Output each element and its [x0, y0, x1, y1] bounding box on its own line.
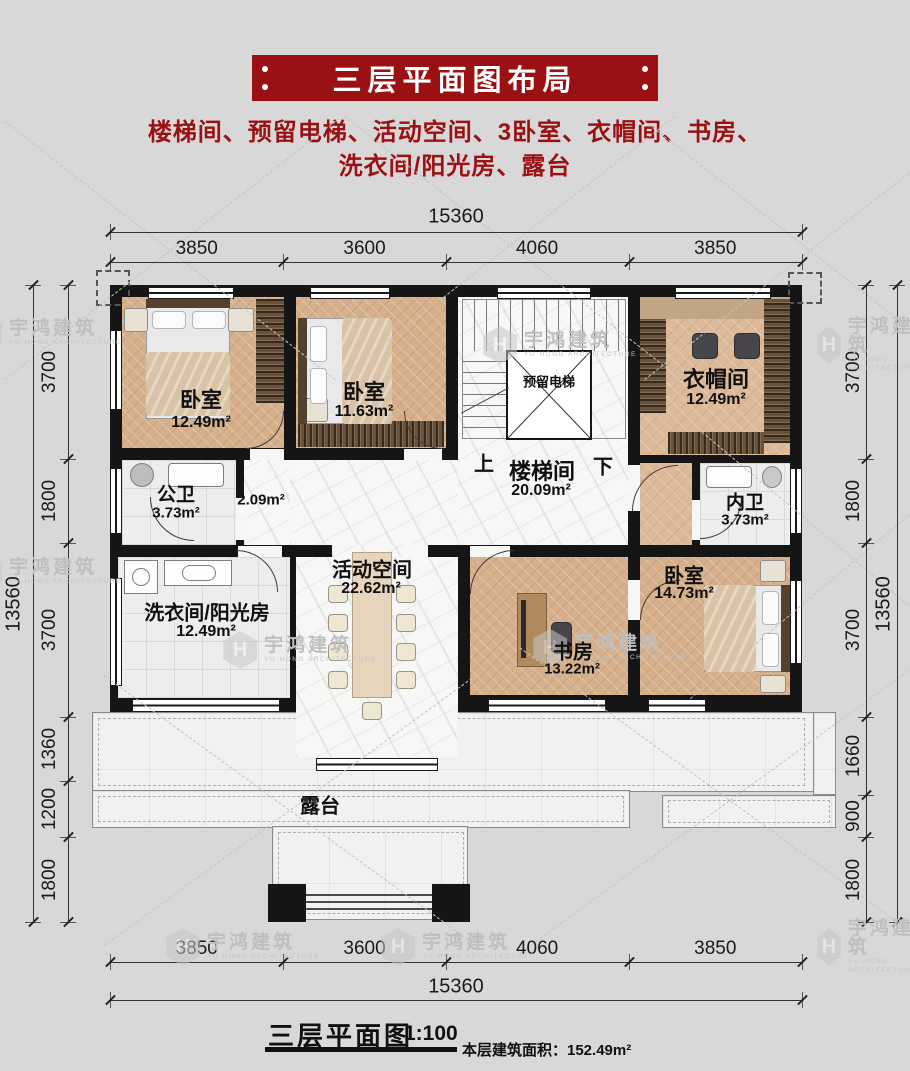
label-activity-area: 22.62m²: [341, 580, 401, 598]
chair: [328, 671, 348, 689]
window: [675, 287, 771, 299]
door-opening: [404, 449, 442, 460]
dimension-mark: [897, 285, 898, 922]
room-midhall: [290, 460, 458, 545]
label-stair-up: 上: [474, 448, 494, 477]
footer-area: 本层建筑面积：152.49m²: [462, 1039, 631, 1060]
washing-machine-door: [132, 568, 150, 586]
terrace-parapet: [813, 712, 836, 795]
dimension-label: 1660: [843, 735, 865, 777]
label-bedroom3-area: 14.73m²: [654, 585, 714, 603]
elevator-cross-icon: [508, 352, 590, 438]
dimension-mark: [110, 232, 802, 233]
dimension-label: 4060: [516, 938, 558, 960]
dimension-label: 3700: [843, 351, 865, 393]
dimension-label: 3600: [343, 938, 385, 960]
dimension-mark: [110, 962, 802, 963]
window: [310, 287, 390, 299]
window: [497, 287, 591, 299]
nightstand: [760, 675, 786, 693]
terrace-pillar: [268, 884, 306, 922]
label-stairwell-area: 20.09m²: [511, 482, 571, 500]
label-bedroom1: 卧室: [180, 384, 222, 414]
dimension-label: 900: [843, 800, 865, 832]
label-laundry: 洗衣间/阳光房: [144, 597, 270, 626]
bed-headboard: [146, 299, 230, 308]
dimension-label: 3850: [176, 938, 218, 960]
dimension-mark: [110, 1000, 802, 1001]
floor-plan-page: { "header": { "title": "三层平面图布局", "subti…: [0, 0, 910, 1071]
toilet: [762, 466, 782, 488]
dimension-label: 1800: [843, 480, 865, 522]
chair: [396, 614, 416, 632]
chair: [362, 702, 382, 720]
dimension-label: 3700: [39, 609, 61, 651]
window: [110, 468, 122, 534]
dimension-label: 15360: [428, 206, 484, 229]
bed-headboard: [781, 585, 790, 672]
label-study-area: 13.22m²: [544, 661, 600, 678]
nightstand: [228, 308, 254, 332]
dimension-label: 3700: [39, 351, 61, 393]
dimension-mark: [110, 262, 802, 263]
label-laundry-area: 12.49m²: [176, 623, 236, 641]
nightstand: [124, 308, 148, 332]
chair: [328, 614, 348, 632]
label-hallway-area: 2.09m²: [237, 492, 285, 509]
dimension-mark: [68, 285, 69, 922]
label-ensuite-area: 3.73m²: [721, 512, 769, 529]
window: [316, 758, 438, 771]
label-bedroom2: 卧室: [343, 376, 385, 406]
dimension-label: 1800: [39, 480, 61, 522]
window: [110, 578, 122, 686]
dimension-label: 1360: [39, 728, 61, 770]
label-bedroom1-area: 12.49m²: [171, 414, 231, 432]
pillow: [310, 368, 327, 404]
pillow: [762, 633, 779, 667]
dimension-label: 1800: [39, 859, 61, 901]
floor-drain: [130, 463, 154, 487]
pillow: [152, 311, 186, 329]
door-opening: [628, 580, 640, 620]
door-opening: [692, 500, 700, 540]
terrace-parapet-line: [668, 800, 830, 823]
elevator-shaft: [506, 350, 592, 440]
window: [132, 699, 280, 712]
cloakroom-wardrobe-bottom: [668, 432, 764, 454]
door-opening: [250, 449, 284, 460]
chair: [328, 643, 348, 661]
terrace-pillar: [432, 884, 470, 922]
roof-corner-mark: [788, 272, 822, 304]
chair: [734, 333, 760, 359]
window: [488, 699, 606, 712]
dimension-label: 3850: [694, 238, 736, 260]
label-public-bath-area: 3.73m²: [152, 505, 200, 522]
window: [648, 699, 706, 712]
chair: [692, 333, 718, 359]
dimension-mark: [33, 285, 34, 922]
dimension-label: 1800: [843, 859, 865, 901]
window: [790, 580, 802, 664]
dimension-label: 3850: [176, 238, 218, 260]
chair: [396, 671, 416, 689]
label-stair-down: 下: [593, 451, 613, 480]
cloakroom-wardrobe-left: [640, 319, 666, 413]
dimension-label: 13560: [873, 576, 896, 632]
label-cloakroom-area: 12.49m²: [686, 391, 746, 409]
label-activity: 活动空间: [332, 554, 412, 583]
terrace-parapet-line: [98, 796, 624, 822]
dimension-label: 4060: [516, 238, 558, 260]
footer-scale: 1:100: [404, 1022, 458, 1046]
footer-underline: [265, 1047, 457, 1052]
chair: [396, 643, 416, 661]
bed-headboard: [298, 318, 307, 424]
label-elevator: 预留电梯: [523, 372, 575, 391]
label-ensuite: 内卫: [726, 488, 764, 515]
pillow: [192, 311, 226, 329]
sink: [706, 466, 752, 488]
window: [790, 468, 802, 534]
dimension-label: 3600: [343, 238, 385, 260]
dimension-label: 3700: [843, 609, 865, 651]
window: [110, 330, 122, 410]
cloakroom-wardrobe-right: [764, 299, 790, 443]
dimension-label: 1200: [39, 788, 61, 830]
label-cloakroom: 衣帽间: [683, 362, 749, 394]
basin: [182, 565, 216, 581]
dimension-label: 15360: [428, 976, 484, 999]
monitor: [521, 600, 526, 658]
floor-plan: 卧室 12.49m² 卧室 11.63m² 预留电梯 衣帽间 12.49m² 上…: [0, 0, 910, 1071]
nightstand: [760, 560, 786, 582]
dimension-label: 13560: [3, 576, 26, 632]
window: [148, 287, 234, 299]
terrace-railing: [306, 893, 432, 910]
dimension-mark: [866, 285, 867, 922]
label-public-bath: 公卫: [157, 480, 195, 507]
label-terrace: 露台: [300, 790, 340, 819]
pillow: [310, 326, 327, 362]
bedroom1-wardrobe: [256, 299, 284, 403]
label-bedroom2-area: 11.63m²: [335, 403, 394, 421]
pillow: [762, 591, 779, 625]
dimension-label: 3850: [694, 938, 736, 960]
